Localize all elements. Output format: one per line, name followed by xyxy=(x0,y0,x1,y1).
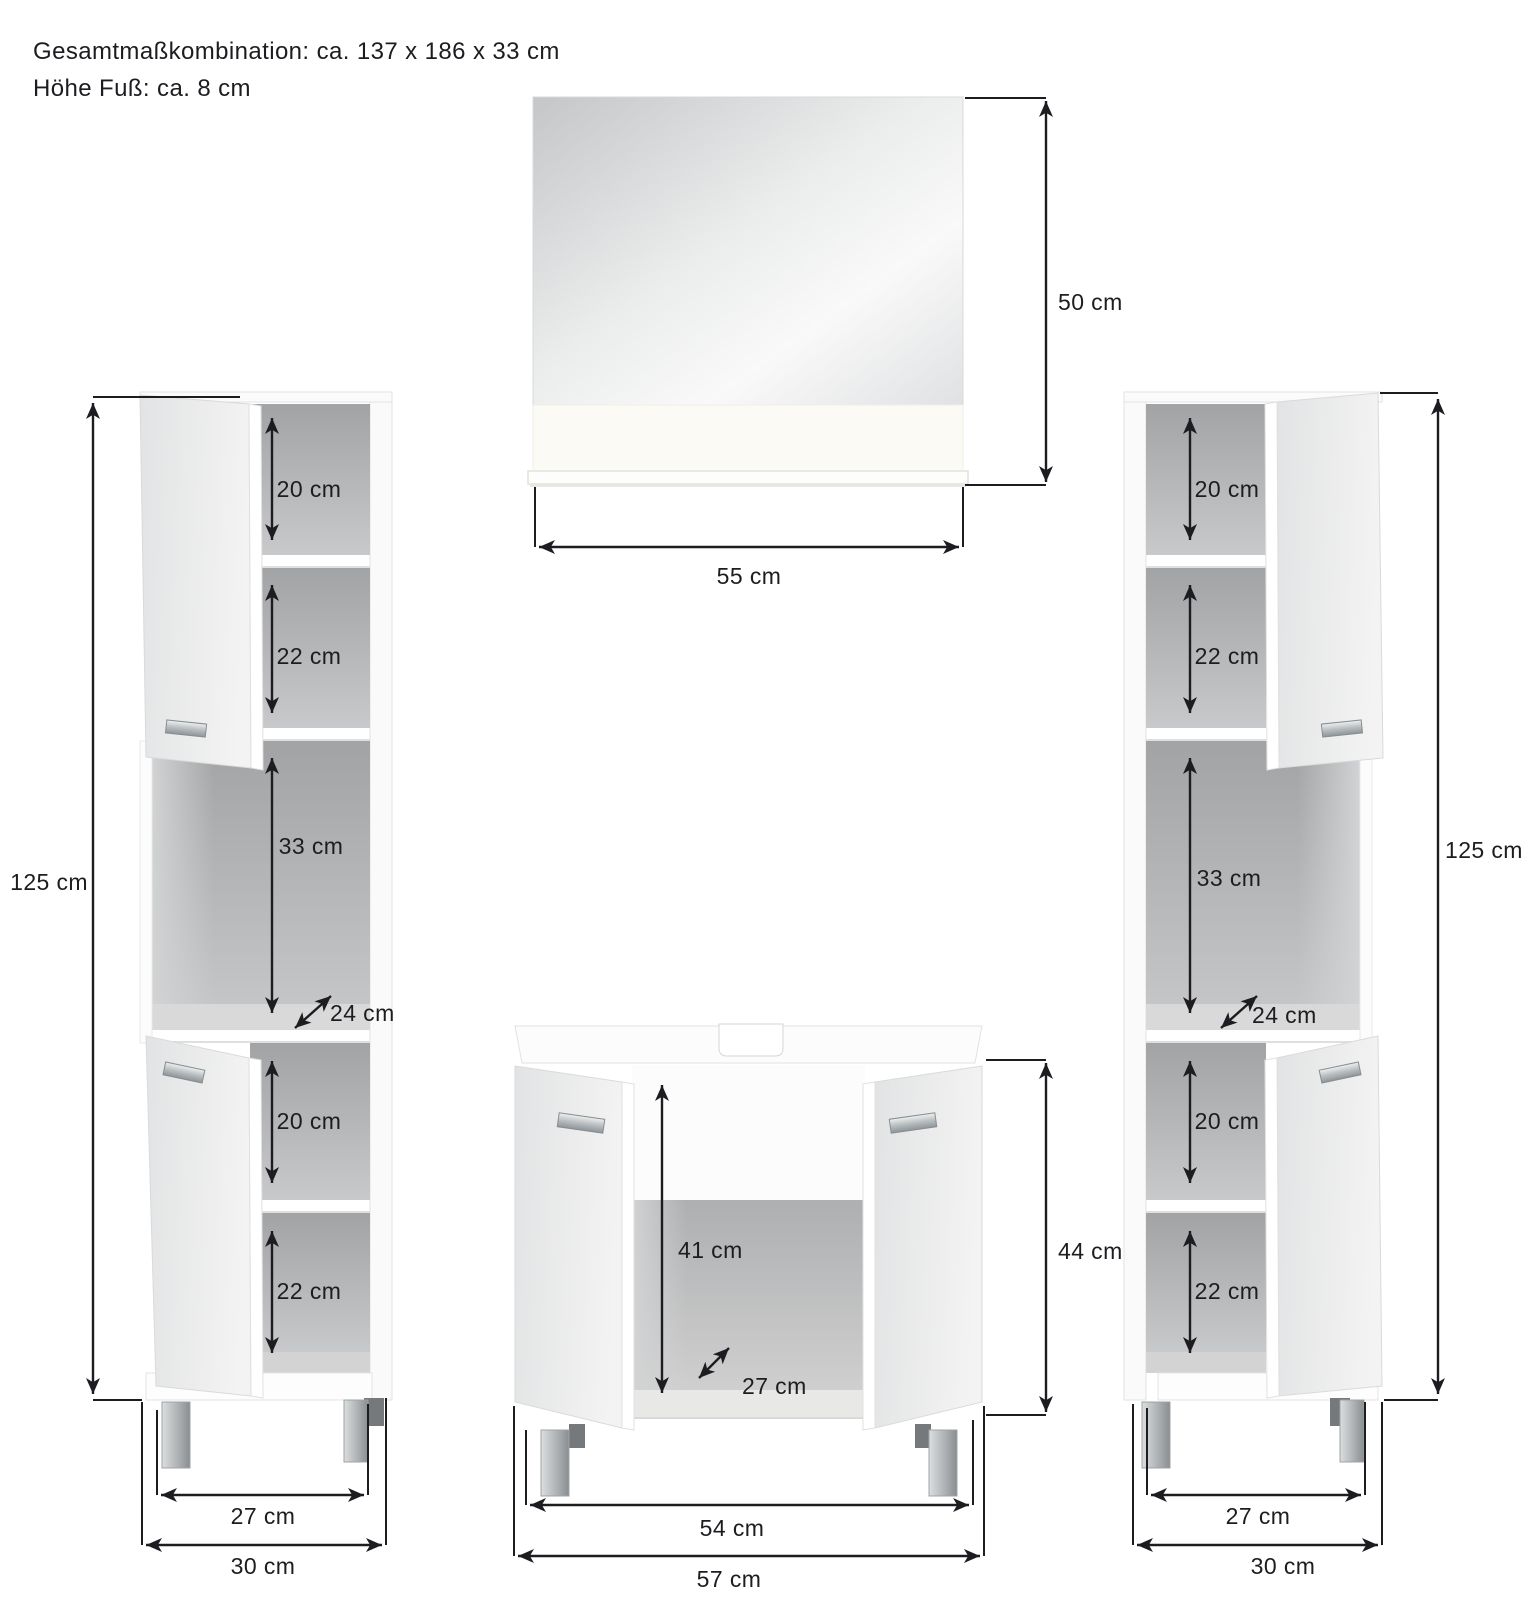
left-tall-cabinet xyxy=(140,392,392,1468)
cabinet-side-panel xyxy=(370,396,392,1400)
sink-outer-width-label: 57 cm xyxy=(697,1566,762,1592)
right-tall-cabinet xyxy=(1124,392,1383,1468)
lower-door-edge xyxy=(249,1058,263,1398)
sink-pipe-notch xyxy=(719,1024,783,1056)
cabinet-right-edge xyxy=(1360,741,1372,1043)
shelf-edge xyxy=(250,1211,370,1213)
title-line2: Höhe Fuß: ca. 8 cm xyxy=(33,75,251,102)
interior-side-light xyxy=(1298,741,1360,1030)
mirror-height-label: 50 cm xyxy=(1058,289,1123,315)
shelf-edge xyxy=(250,739,370,741)
mirror-glass xyxy=(533,97,963,405)
lower-door-edge xyxy=(1265,1058,1279,1398)
right-compartment2-label: 22 cm xyxy=(1195,643,1260,669)
upper-door xyxy=(140,395,251,768)
cabinet-side-panel xyxy=(1124,396,1146,1400)
mirror-shelf-shadow xyxy=(530,484,966,487)
cabinet-left-edge xyxy=(140,741,152,1043)
right-inner-width-label: 27 cm xyxy=(1226,1503,1291,1529)
right-compartment5-label: 22 cm xyxy=(1195,1278,1260,1304)
upper-door xyxy=(1277,393,1383,768)
interior-side-light xyxy=(632,1200,687,1396)
cabinet-leg xyxy=(344,1400,368,1462)
left-total-height-label: 125 cm xyxy=(10,869,88,895)
right-total-height-label: 125 cm xyxy=(1445,837,1523,863)
sink-inner-height-label: 41 cm xyxy=(678,1237,743,1263)
lower-door xyxy=(146,1036,251,1396)
left-open-compartment-label: 33 cm xyxy=(279,833,344,859)
title-block: Gesamtmaßkombination: ca. 137 x 186 x 33… xyxy=(33,38,560,102)
left-compartment4-label: 20 cm xyxy=(277,1108,342,1134)
mirror-panel xyxy=(533,405,963,471)
shelf-edge xyxy=(1146,1211,1266,1213)
right-outer-width-label: 30 cm xyxy=(1251,1553,1316,1579)
sink-left-door-edge xyxy=(622,1082,634,1430)
left-compartment2-label: 22 cm xyxy=(277,643,342,669)
cabinet-back-leg xyxy=(569,1424,585,1448)
shelf-edge xyxy=(1146,1041,1360,1043)
left-inner-width-label: 27 cm xyxy=(231,1503,296,1529)
left-outer-width-label: 30 cm xyxy=(231,1553,296,1579)
shelf-edge xyxy=(250,566,370,568)
sink-inner-width-label: 54 cm xyxy=(700,1515,765,1541)
left-compartment5-label: 22 cm xyxy=(277,1278,342,1304)
upper-door-edge xyxy=(1265,402,1279,770)
shelf-edge xyxy=(1146,566,1266,568)
mirror-shelf xyxy=(528,471,968,484)
sink-inner-depth-label: 27 cm xyxy=(742,1373,807,1399)
sink-cabinet xyxy=(515,1024,982,1496)
left-depth-label: 24 cm xyxy=(330,1000,395,1026)
mirror-height-dimension: 50 cm xyxy=(965,98,1123,485)
lower-door xyxy=(1277,1036,1382,1396)
sink-body-height-label: 44 cm xyxy=(1058,1238,1123,1264)
mirror-width-label: 55 cm xyxy=(717,563,782,589)
shelf-edge xyxy=(1146,739,1266,741)
interior-upper xyxy=(632,1065,865,1205)
left-compartment1-label: 20 cm xyxy=(277,476,342,502)
furniture-dimension-diagram: Gesamtmaßkombination: ca. 137 x 186 x 33… xyxy=(0,0,1531,1600)
right-depth-label: 24 cm xyxy=(1252,1002,1317,1028)
shelf-edge xyxy=(152,1041,370,1043)
cabinet-leg xyxy=(162,1402,190,1468)
cabinet-leg xyxy=(1340,1400,1364,1462)
right-compartment4-label: 20 cm xyxy=(1195,1108,1260,1134)
cabinet-leg xyxy=(929,1430,957,1496)
right-open-compartment-label: 33 cm xyxy=(1197,865,1262,891)
right-compartment1-label: 20 cm xyxy=(1195,476,1260,502)
compartment-floor xyxy=(250,1352,370,1373)
mirror-width-dimension: 55 cm xyxy=(535,487,963,589)
interior-side-light xyxy=(152,741,214,1030)
compartment-floor xyxy=(1146,1352,1266,1373)
upper-door-edge xyxy=(249,404,263,770)
title-line1: Gesamtmaßkombination: ca. 137 x 186 x 33… xyxy=(33,38,560,65)
sink-right-door-edge xyxy=(863,1082,875,1430)
cabinet-leg xyxy=(541,1430,569,1496)
mirror xyxy=(528,97,968,487)
